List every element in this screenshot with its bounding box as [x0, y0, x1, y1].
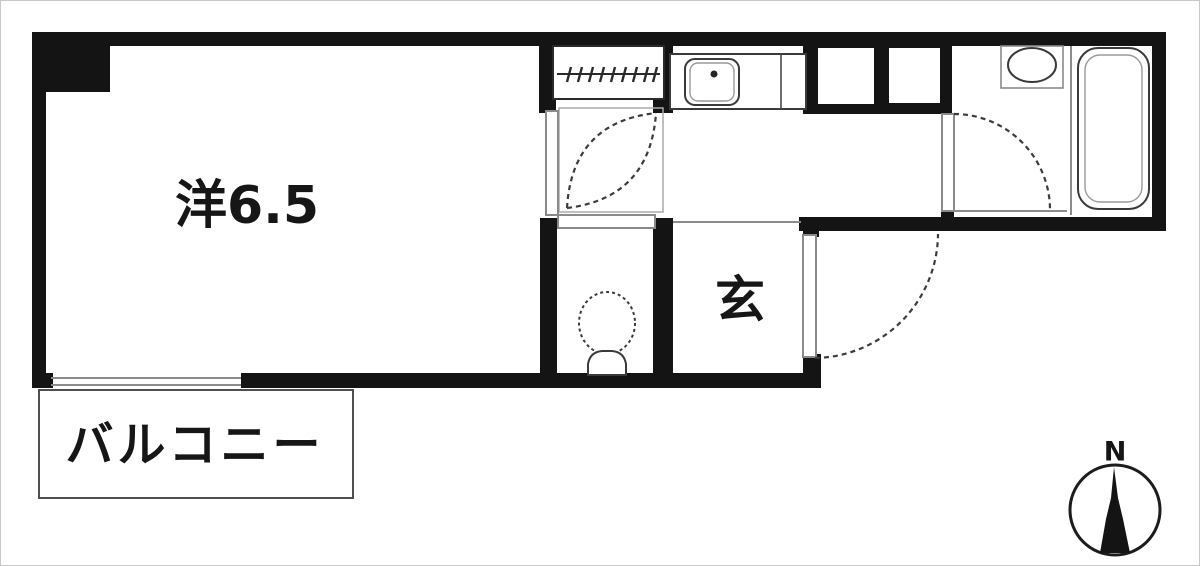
north-needle-icon: [1100, 467, 1130, 553]
room-door-swing-icon: [546, 111, 558, 215]
wall-entrance-stub-bottom: [803, 354, 821, 388]
bathroom-door-swing-icon: [942, 114, 954, 211]
wall-hall-south: [799, 217, 1166, 231]
north-label: N: [1104, 437, 1127, 468]
wash-basin-icon: [1001, 46, 1063, 88]
door-swing-area: [559, 108, 663, 212]
entrance-label: 玄: [715, 271, 765, 329]
wall-toilet-right: [653, 218, 673, 388]
floor-plan-canvas: バルコニー 洋6.5 玄 N: [1, 1, 1199, 565]
entrance-door-swing-icon: [803, 235, 816, 357]
bathroom-door-swing-icon: [954, 114, 1050, 210]
room-door-swing-icon: [567, 113, 656, 208]
floor-plan: バルコニー 洋6.5 玄 N: [0, 0, 1200, 566]
balcony: バルコニー: [39, 390, 353, 498]
toilet-icon: [579, 292, 635, 375]
storage-box: [889, 48, 940, 103]
pillar: [34, 34, 110, 92]
entrance-door-swing-icon: [815, 234, 938, 358]
wall-top: [32, 32, 1166, 46]
bathtub-icon: [1078, 48, 1149, 209]
wall-bottom-corner: [32, 373, 53, 388]
louver-window-icon: [553, 46, 664, 99]
compass: N: [1070, 437, 1160, 556]
wall-toilet-left: [540, 218, 557, 388]
balcony-label: バルコニー: [65, 417, 324, 473]
main-room-label: 洋6.5: [175, 176, 319, 236]
toilet-door-icon: [558, 215, 655, 228]
kitchen-sink-icon: [685, 59, 739, 105]
storage-box: [818, 48, 874, 104]
wall-right: [1152, 32, 1166, 231]
wall-bottom: [241, 373, 819, 388]
